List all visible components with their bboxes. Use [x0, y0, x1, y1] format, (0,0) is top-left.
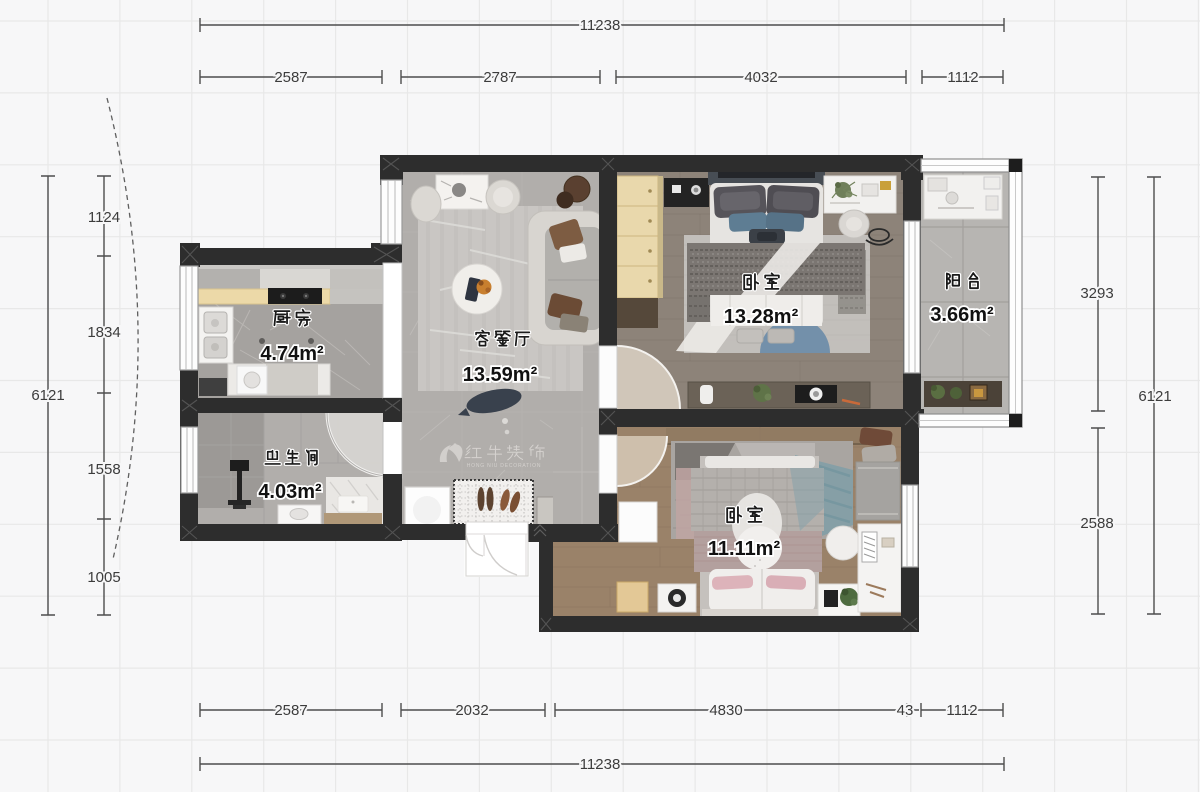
- svg-text:3293: 3293: [1080, 285, 1113, 302]
- svg-text:1558: 1558: [87, 461, 120, 478]
- svg-text:1005: 1005: [87, 569, 120, 586]
- svg-text:4830: 4830: [709, 702, 742, 719]
- svg-text:2787: 2787: [483, 69, 516, 86]
- svg-text:43: 43: [897, 702, 914, 719]
- svg-text:4.03m²: 4.03m²: [258, 481, 322, 503]
- svg-text:2587: 2587: [274, 69, 307, 86]
- svg-text:4.74m²: 4.74m²: [260, 343, 324, 365]
- svg-text:1112: 1112: [946, 702, 977, 719]
- svg-text:3.66m²: 3.66m²: [930, 304, 994, 326]
- svg-text:2588: 2588: [1080, 515, 1113, 532]
- svg-text:1834: 1834: [87, 324, 120, 341]
- svg-text:4032: 4032: [744, 69, 777, 86]
- svg-text:2587: 2587: [274, 702, 307, 719]
- svg-text:13.28m²: 13.28m²: [724, 306, 799, 328]
- svg-text:2032: 2032: [455, 702, 488, 719]
- svg-text:1112: 1112: [947, 69, 978, 86]
- svg-text:HONG NIU DECORATION: HONG NIU DECORATION: [467, 463, 542, 469]
- svg-text:11.11m²: 11.11m²: [708, 538, 781, 560]
- svg-text:6121: 6121: [31, 387, 64, 404]
- svg-text:13.59m²: 13.59m²: [463, 364, 538, 386]
- svg-text:11238: 11238: [580, 17, 621, 34]
- svg-text:11238: 11238: [580, 756, 621, 773]
- svg-text:6121: 6121: [1138, 388, 1171, 405]
- svg-text:1124: 1124: [88, 209, 120, 226]
